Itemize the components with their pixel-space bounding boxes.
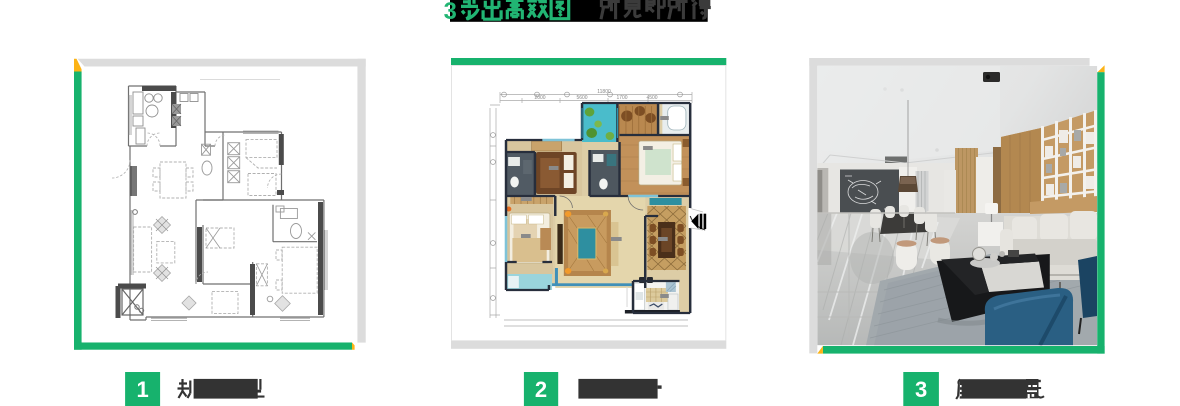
svg-text:5600: 5600 [576,95,587,101]
svg-text:4500: 4500 [646,95,657,101]
svg-text:3: 3 [915,377,927,402]
svg-text:2: 2 [535,377,547,402]
svg-text:1700: 1700 [616,95,627,101]
svg-text:2000: 2000 [534,95,545,101]
svg-text:1: 1 [136,377,148,402]
svg-text:11800: 11800 [597,89,611,95]
svg-text:3: 3 [444,0,457,25]
